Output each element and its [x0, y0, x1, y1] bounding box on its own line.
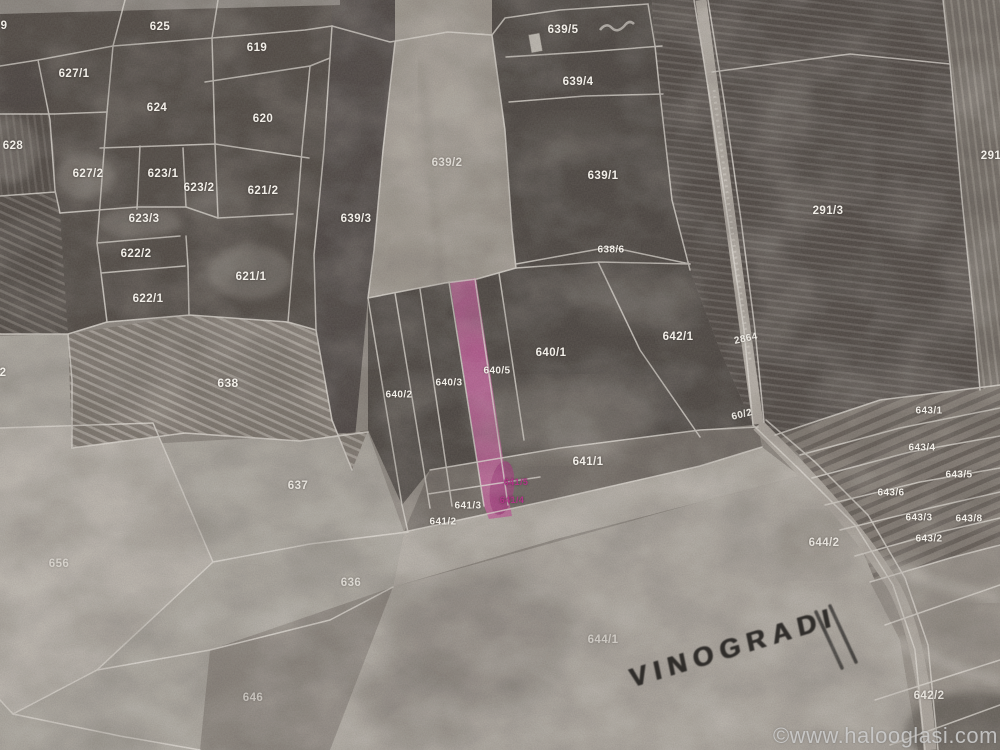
cadastral-map-photo: 9625619627/1624620628627/2623/1623/2621/… — [0, 0, 1000, 750]
watermark: ©www.halooglasi.com — [773, 723, 998, 749]
noise-overlay — [0, 0, 1000, 750]
map-image — [0, 0, 1000, 750]
